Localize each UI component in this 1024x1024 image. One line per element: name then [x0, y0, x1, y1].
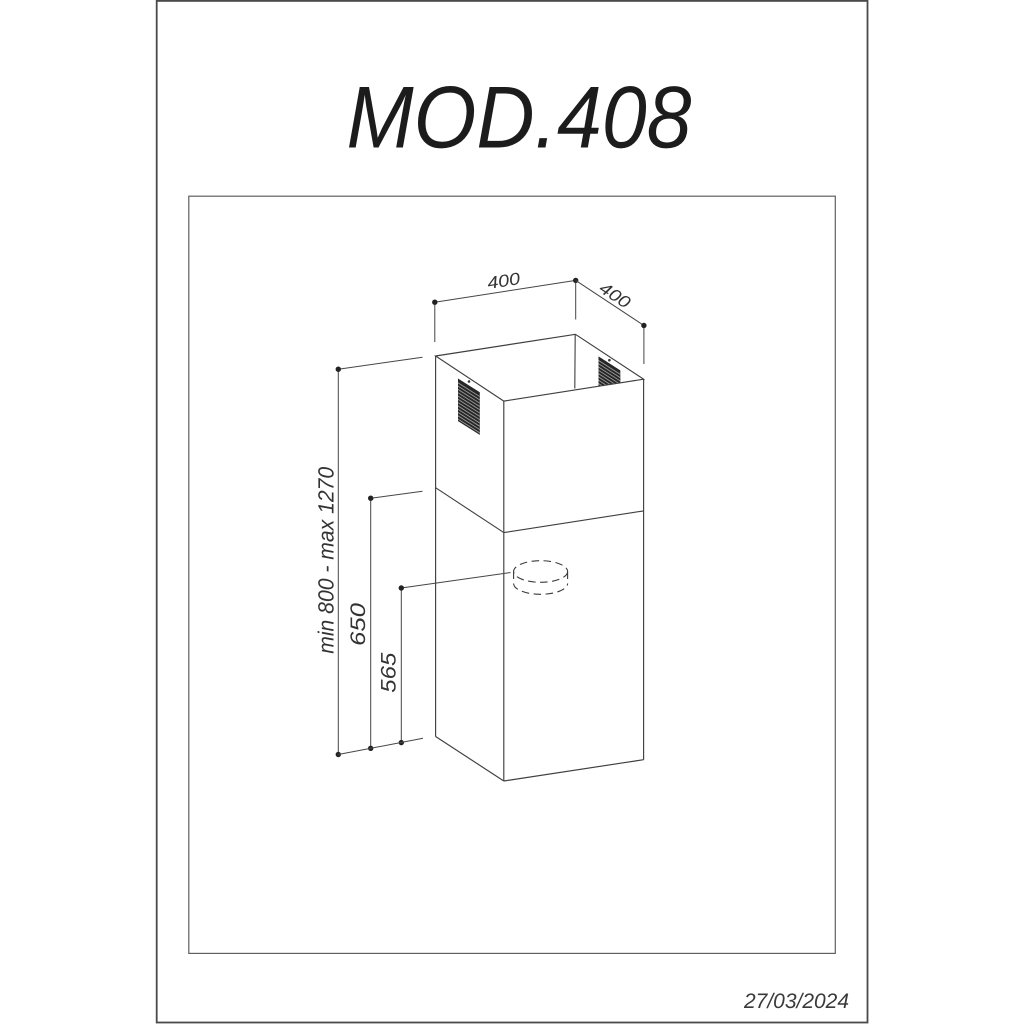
- svg-text:650: 650: [347, 603, 370, 646]
- svg-text:min 800 - max 1270: min 800 - max 1270: [314, 466, 339, 654]
- svg-text:565: 565: [378, 652, 401, 692]
- svg-text:27/03/2024: 27/03/2024: [743, 990, 849, 1013]
- svg-text:MOD.408: MOD.408: [347, 67, 692, 166]
